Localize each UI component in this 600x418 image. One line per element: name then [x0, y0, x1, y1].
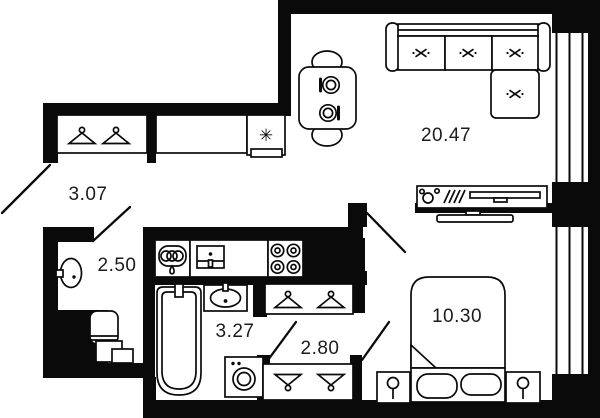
nightstand-left: [377, 372, 410, 403]
tv-on-stand: [470, 192, 540, 198]
closet-door-swing-line: [362, 322, 389, 360]
kitchen-counter: [190, 240, 268, 277]
wall-segment: [348, 203, 367, 227]
room-area-label-bathroom: 3.27: [216, 321, 255, 342]
wall-segment: [43, 227, 58, 377]
wall-segment: [278, 0, 291, 116]
floor-plan-drawing: ✳: [0, 0, 600, 418]
room-area-label-bedroom: 10.30: [432, 306, 482, 327]
boiler: [56, 259, 82, 288]
snowflake-icon: ✳: [259, 126, 273, 146]
bed: [411, 277, 505, 402]
floor-plan-canvas: ✳: [0, 0, 600, 418]
room-area-label-hallway: 3.07: [69, 184, 108, 205]
dining-table: [299, 51, 356, 146]
room-area-label-closet: 2.80: [301, 338, 340, 359]
wall-segment: [43, 363, 155, 378]
wall-segment: [278, 0, 600, 14]
hallway-wardrobe: [57, 115, 147, 153]
storage-door-swing-line: [93, 207, 130, 241]
wall-segment: [43, 103, 58, 163]
bath-faucet-icon: [175, 284, 183, 297]
entrance-door-swing-line: [2, 165, 50, 213]
hallway-cabinet: [156, 115, 247, 153]
closet-door-swing-line: [268, 322, 296, 360]
washing-machine: [225, 357, 263, 397]
wall-segment: [43, 103, 288, 116]
wall-segment: [552, 0, 600, 33]
pillow: [417, 374, 457, 398]
bathroom-sink: [204, 283, 247, 311]
closet-wardrobe-top: [265, 284, 353, 314]
wall-segment: [352, 282, 365, 313]
wall-segment: [143, 227, 155, 403]
nightstand-right: [506, 372, 540, 403]
closet-wardrobe-bottom: [263, 364, 353, 400]
bedroom-door-swing-line: [367, 213, 405, 252]
wall-segment: [43, 227, 94, 242]
kitchen-sink-unit: [155, 240, 190, 277]
wall-segment: [552, 182, 600, 227]
bathtub: [157, 284, 201, 395]
stove: [268, 240, 303, 277]
room-area-label-storage: 2.50: [98, 255, 137, 276]
room-area-label-living: 20.47: [421, 125, 471, 146]
fridge: ✳: [247, 115, 285, 157]
tv-dresser: [417, 186, 547, 208]
wall-segment: [303, 238, 365, 274]
wall-segment: [552, 374, 600, 418]
corner-sofa: [386, 23, 550, 118]
pillow: [461, 374, 501, 395]
storage-shelves: [90, 311, 133, 363]
wall-segment: [147, 115, 156, 163]
